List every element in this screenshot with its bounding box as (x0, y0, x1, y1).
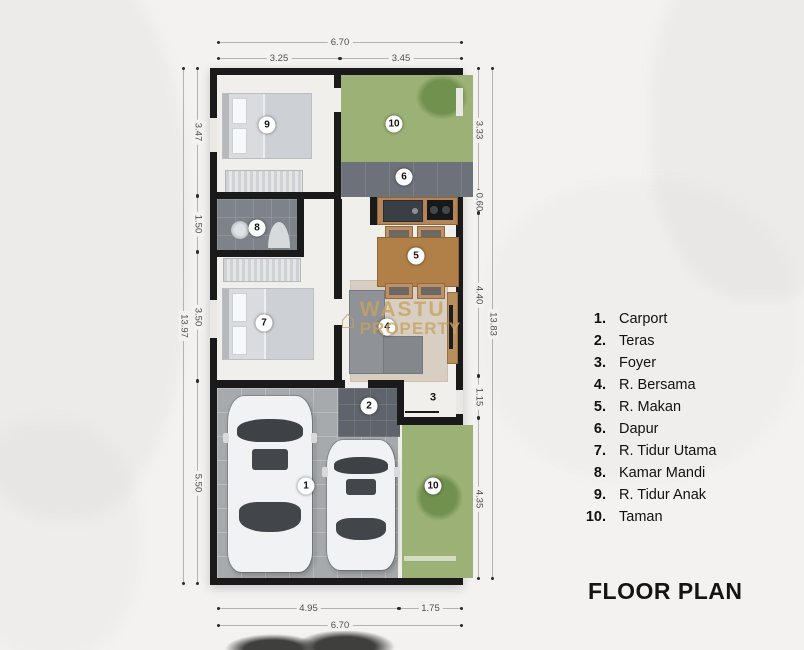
dim-right-seg2: 0.60 (478, 191, 479, 213)
wall (217, 250, 304, 257)
legend-number: 7. (580, 443, 606, 459)
dim-left-seg3: 3.50 (197, 252, 198, 381)
dining-chair-4 (417, 283, 445, 299)
kitchen-stove (427, 200, 453, 220)
dim-right-seg1: 3.33 (478, 68, 479, 191)
legend-label: R. Tidur Anak (619, 487, 706, 503)
dim-bottom-seg1: 4.95 (218, 608, 399, 609)
legend-item-foyer: 3.Foyer (580, 352, 717, 374)
garden-path (404, 556, 456, 561)
legend-item-carport: 1.Carport (580, 308, 717, 330)
dim-right-seg4: 1.15 (478, 376, 479, 418)
wardrobe-child (225, 170, 303, 193)
wall (334, 325, 342, 388)
legend-number: 9. (580, 487, 606, 503)
kitchen-floor (341, 162, 473, 197)
legend-item-taman: 10.Taman (580, 506, 717, 528)
sofa-chaise (383, 336, 423, 374)
wardrobe-master (223, 258, 301, 282)
bathroom-basin (231, 221, 249, 239)
dim-top-total: 6.70 (218, 42, 462, 43)
dim-left-total: 13.97 (183, 68, 184, 584)
wall (334, 75, 341, 88)
wall (397, 417, 456, 425)
legend-item-kamar-mandi: 8.Kamar Mandi (580, 462, 717, 484)
bed-child (222, 93, 312, 159)
dining-table (377, 237, 459, 287)
dining-chair-3 (385, 283, 413, 299)
dim-top-seg1: 3.25 (218, 58, 340, 59)
legend-item-dapur: 6.Dapur (580, 418, 717, 440)
legend-label: Dapur (619, 421, 659, 437)
wall (297, 199, 304, 252)
wall (334, 199, 342, 299)
wall (217, 380, 345, 388)
floor-plan (210, 68, 463, 585)
car-small (327, 440, 395, 570)
legend-item-r-makan: 5.R. Makan (580, 396, 717, 418)
legend-label: Taman (619, 509, 663, 525)
window-right-1 (456, 88, 463, 116)
window-left-1 (210, 118, 217, 152)
garden-bottom-tree (407, 465, 471, 529)
entry-door-right (456, 390, 463, 414)
legend-number: 4. (580, 377, 606, 393)
legend-label: Foyer (619, 355, 656, 371)
legend-number: 10. (580, 509, 606, 525)
legend-item-r-tidur-utama: 7.R. Tidur Utama (580, 440, 717, 462)
sofa-long (349, 290, 385, 374)
legend-number: 1. (580, 311, 606, 327)
legend-number: 8. (580, 465, 606, 481)
kitchen-sink (383, 200, 423, 222)
wall (370, 197, 377, 225)
dim-left-seg1: 3.47 (197, 68, 198, 196)
legend-label: R. Makan (619, 399, 681, 415)
dim-right-seg5: 4.35 (478, 418, 479, 579)
legend-number: 2. (580, 333, 606, 349)
legend-list: 1.Carport2.Teras3.Foyer4.R. Bersama5.R. … (580, 308, 717, 528)
dim-top-seg2: 3.45 (340, 58, 462, 59)
teras-floor (338, 388, 400, 437)
legend-number: 3. (580, 355, 606, 371)
tv (449, 305, 453, 349)
dim-right-seg3: 4.40 (478, 213, 479, 376)
car-large (228, 396, 312, 572)
dim-bottom-total: 6.70 (218, 625, 462, 626)
legend-label: R. Bersama (619, 377, 696, 393)
floor-plan-poster: 9106857423110 ⌂ WASTU PROPERTY 6.70 3.25… (0, 0, 804, 650)
dim-left-seg2: 1.50 (197, 196, 198, 252)
legend-number: 5. (580, 399, 606, 415)
legend-label: Teras (619, 333, 654, 349)
background-house-left (0, 420, 140, 650)
legend-label: Carport (619, 311, 667, 327)
bed-master (222, 288, 314, 360)
garden-top-tree (407, 67, 477, 127)
wall (217, 192, 341, 199)
background-bush-2 (295, 630, 395, 650)
wall (334, 112, 341, 197)
dim-right-total: 13.83 (492, 68, 493, 579)
legend-label: R. Tidur Utama (619, 443, 717, 459)
dim-left-seg4: 5.50 (197, 381, 198, 584)
dim-bottom-seg2: 1.75 (399, 608, 462, 609)
page-title: FLOOR PLAN (588, 578, 743, 605)
window-left-2 (210, 300, 217, 338)
legend-label: Kamar Mandi (619, 465, 705, 481)
legend-item-teras: 2.Teras (580, 330, 717, 352)
legend-item-r-bersama: 4.R. Bersama (580, 374, 717, 396)
foyer-step (405, 411, 439, 413)
legend-item-r-tidur-anak: 9.R. Tidur Anak (580, 484, 717, 506)
legend-number: 6. (580, 421, 606, 437)
